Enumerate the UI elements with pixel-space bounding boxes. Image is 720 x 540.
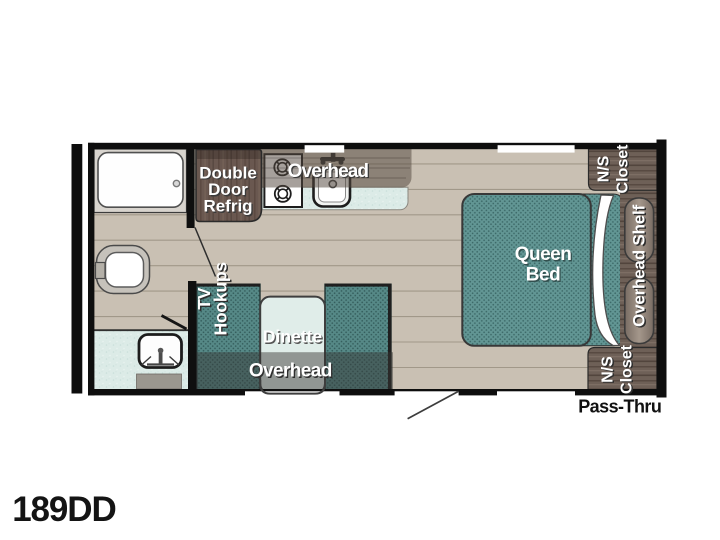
svg-text:Overhead: Overhead (288, 161, 369, 182)
svg-text:Hookups: Hookups (211, 262, 231, 336)
svg-text:189DD: 189DD (12, 490, 115, 529)
svg-text:Refrig: Refrig (203, 197, 252, 216)
svg-text:Closet: Closet (619, 344, 636, 394)
svg-text:Bed: Bed (526, 265, 560, 286)
svg-text:Overhead Shelf: Overhead Shelf (630, 205, 649, 327)
svg-text:Closet: Closet (615, 144, 632, 194)
svg-text:N/S: N/S (600, 356, 617, 383)
svg-text:Pass-Thru: Pass-Thru (578, 397, 661, 417)
svg-text:Queen: Queen (515, 244, 572, 265)
svg-text:Overhead: Overhead (249, 361, 332, 382)
svg-text:Dinette: Dinette (263, 327, 323, 347)
svg-text:N/S: N/S (596, 155, 613, 182)
